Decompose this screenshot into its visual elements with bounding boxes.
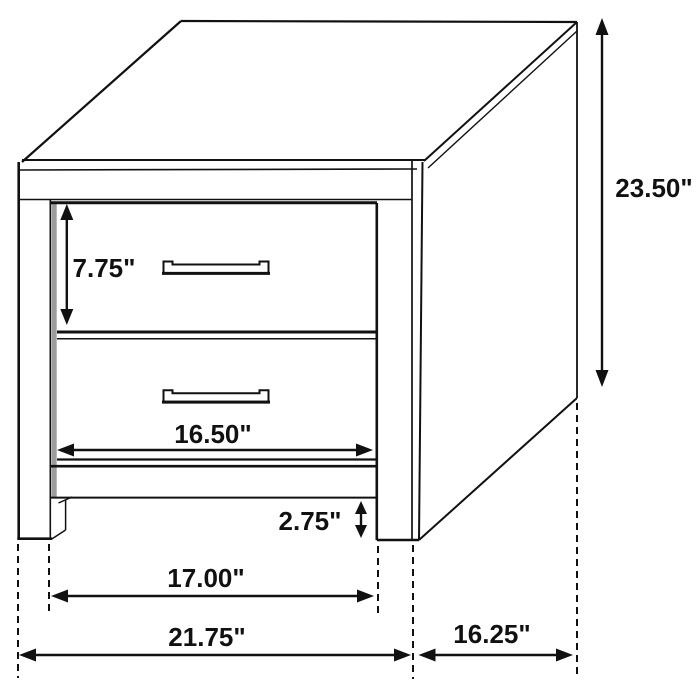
left-leg-side-bottom <box>52 530 66 539</box>
handle-bar <box>164 390 269 402</box>
top-front-edge-lower <box>20 169 417 170</box>
side-panel <box>412 22 577 540</box>
drawer-handle-top <box>162 262 270 274</box>
dim-leg-span: 17.00" <box>51 563 374 603</box>
arrowhead-right <box>356 444 373 457</box>
top-left-edge <box>22 21 181 162</box>
dim-overall-height: 23.50" <box>596 18 693 387</box>
arrowhead-right <box>394 649 411 662</box>
left-opening-reveal <box>52 203 57 498</box>
front-frame <box>17 162 419 540</box>
arrowhead-down <box>596 370 609 387</box>
dim-top-drawer-height: 7.75" <box>60 204 135 325</box>
nightstand-dimension-diagram: 23.50" 7.75" 16.50" 2.75" 17.00" 21.75" <box>0 0 700 700</box>
arrowhead-down <box>60 309 73 325</box>
arrowhead-up <box>596 18 609 35</box>
side-bottom-edge <box>419 398 577 540</box>
top-right-edge <box>424 22 577 161</box>
dim-drawer-width: 16.50" <box>57 419 373 457</box>
handle-bar <box>164 262 269 274</box>
top-surface <box>20 21 577 170</box>
arrowhead-right <box>556 649 573 662</box>
dim-overall-height-label: 23.50" <box>615 173 692 203</box>
dim-overall-width-label: 21.75" <box>168 622 245 652</box>
dim-drawer-width-label: 16.50" <box>174 419 251 449</box>
drawer-handle-bottom <box>162 390 270 402</box>
dim-depth-label: 16.25" <box>453 619 530 649</box>
dim-top-drawer-height-label: 7.75" <box>73 253 136 283</box>
side-panel-top-edge <box>428 31 577 168</box>
top-back-edge <box>181 21 577 22</box>
dim-overall-width: 21.75" <box>19 622 411 662</box>
dim-clearance: 2.75" <box>279 501 367 538</box>
dim-leg-span-label: 17.00" <box>167 563 244 593</box>
arrowhead-right <box>357 590 374 603</box>
dim-depth: 16.25" <box>419 619 574 662</box>
arrowhead-up <box>60 204 73 220</box>
arrowhead-down <box>355 525 367 538</box>
front-right-corner-outer <box>419 162 423 540</box>
dim-clearance-label: 2.75" <box>279 506 342 536</box>
